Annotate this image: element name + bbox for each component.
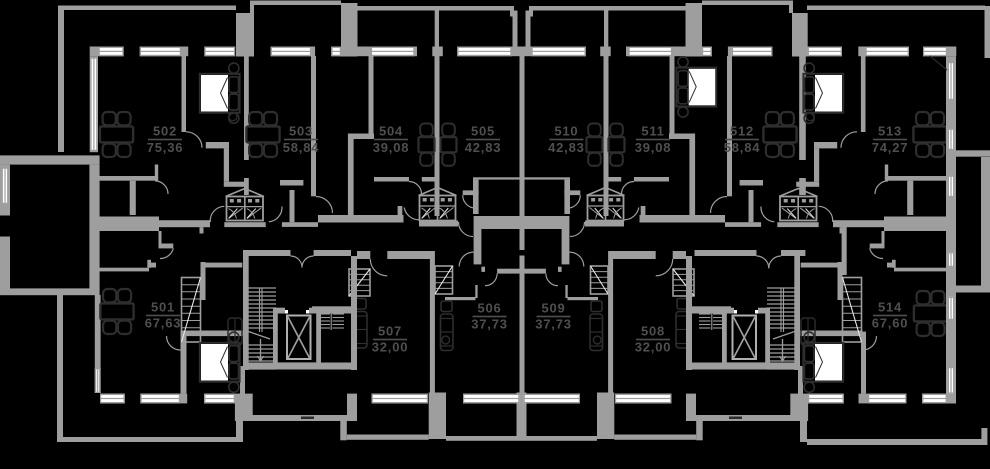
svg-text:74,27: 74,27 [872,140,909,155]
svg-text:58,84: 58,84 [283,140,320,155]
svg-text:32,00: 32,00 [372,340,409,355]
svg-text:503: 503 [289,124,313,139]
svg-text:75,36: 75,36 [147,140,184,155]
svg-text:42,83: 42,83 [548,140,585,155]
svg-text:508: 508 [641,324,665,339]
svg-text:37,73: 37,73 [535,317,572,332]
svg-text:512: 512 [730,124,754,139]
svg-text:58,84: 58,84 [724,140,761,155]
svg-text:513: 513 [878,124,902,139]
svg-text:514: 514 [878,300,902,315]
svg-text:504: 504 [379,124,403,139]
svg-text:505: 505 [471,124,495,139]
svg-text:501: 501 [151,300,175,315]
svg-text:506: 506 [477,301,501,316]
svg-text:502: 502 [153,124,177,139]
svg-text:39,08: 39,08 [635,140,672,155]
svg-text:507: 507 [378,324,402,339]
svg-text:42,83: 42,83 [465,140,502,155]
svg-text:39,08: 39,08 [373,140,410,155]
svg-text:37,73: 37,73 [471,317,508,332]
svg-text:67,60: 67,60 [872,316,909,331]
svg-text:509: 509 [541,301,565,316]
svg-text:511: 511 [641,124,664,139]
svg-text:510: 510 [554,124,578,139]
svg-text:67,63: 67,63 [145,316,182,331]
svg-text:32,00: 32,00 [635,340,672,355]
